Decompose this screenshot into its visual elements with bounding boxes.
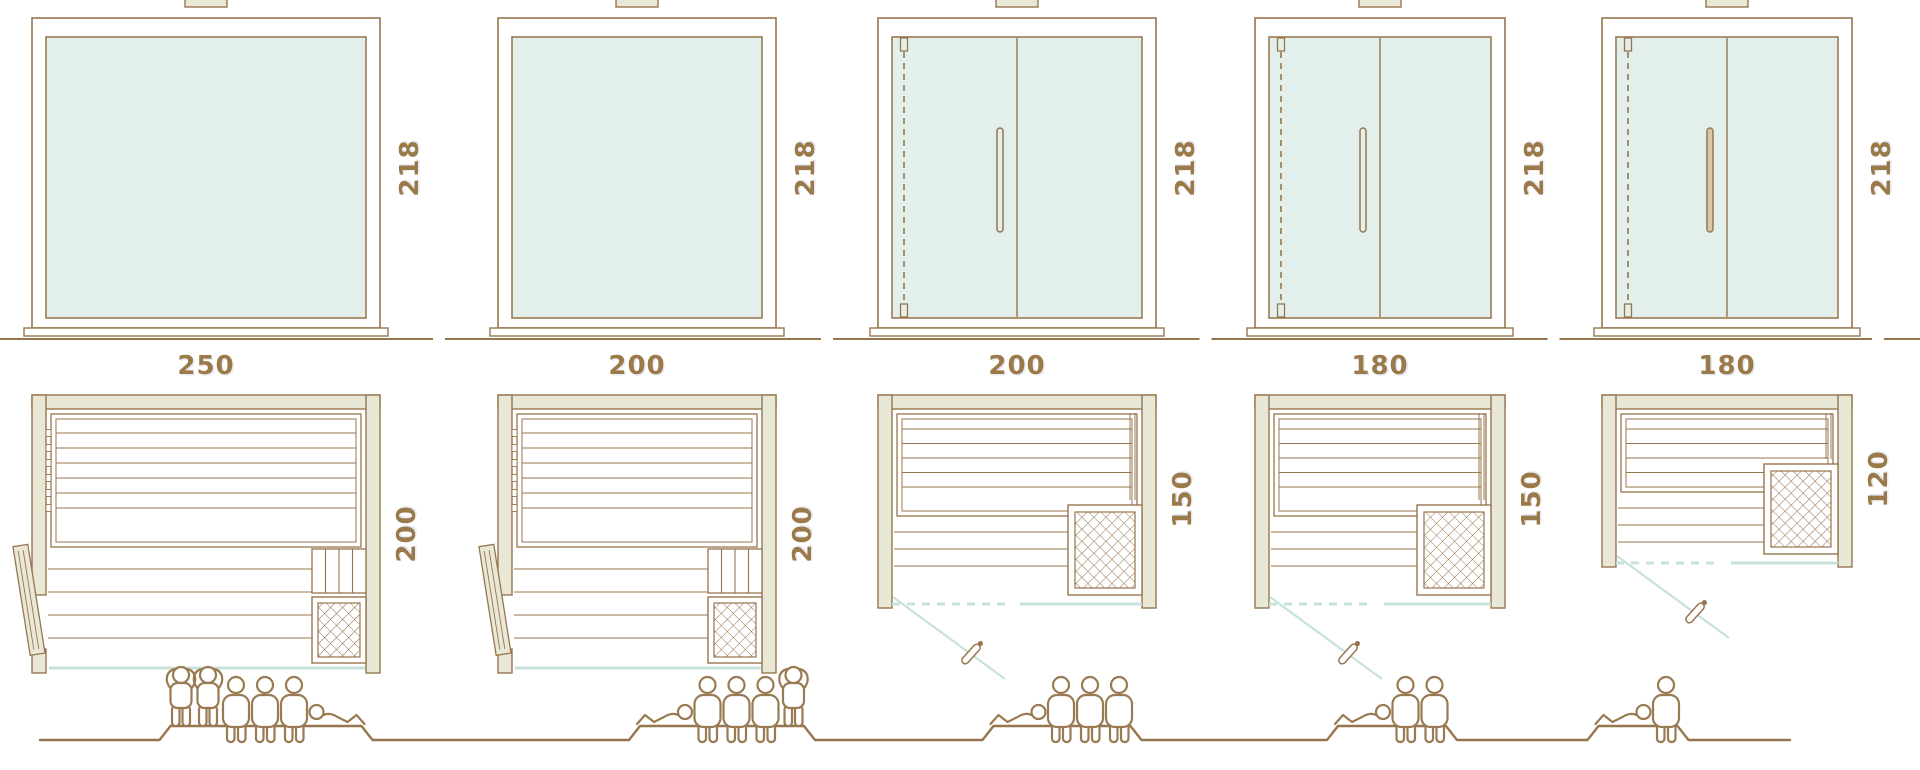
door-swing-icon [1270,597,1382,679]
elevation-base-line [0,336,1920,342]
depth-dim-label: 120 [1864,450,1894,507]
sauna-180x150-plan [1255,395,1505,679]
height-dim-label: 218 [1520,139,1550,196]
heater-icon [1068,505,1142,595]
sauna-dimensions-diagram: 218 250 200 218 200 200 218 200 150 218 … [0,0,1920,770]
door-handle-icon [1707,128,1713,232]
person-seated-icon [1422,677,1448,742]
door-handle-icon [997,128,1003,232]
person-seated-icon [1106,677,1132,742]
person-seated-icon [695,677,721,742]
width-dim-label: 250 [177,351,234,381]
person-lying-icon [1335,705,1390,724]
person-seated-icon [1077,677,1103,742]
person-standing-icon [194,667,222,726]
person-lying-icon [310,705,365,724]
sauna-200x200-elevation [490,0,784,336]
door-swing-icon [1617,556,1729,638]
person-seated-icon [1653,677,1679,742]
width-dim-label: 200 [608,351,665,381]
depth-dim-label: 200 [392,505,422,562]
person-seated-icon [223,677,249,742]
heater-icon [1764,464,1838,554]
heater-icon [312,597,366,663]
diagram-canvas [0,0,1920,770]
person-seated-icon [753,677,779,742]
width-dim-label: 200 [988,351,1045,381]
height-dim-label: 218 [791,139,821,196]
person-standing-icon [779,667,807,726]
sauna-200x150-elevation [870,0,1164,336]
person-lying-icon [991,705,1046,724]
person-seated-icon [252,677,278,742]
sauna-250x200-capacity-figures [167,667,365,742]
person-seated-icon [724,677,750,742]
door-swing-icon [893,597,1005,679]
person-seated-icon [1048,677,1074,742]
heater-icon [1417,505,1491,595]
height-dim-label: 218 [1171,139,1201,196]
sauna-250x200-plan [13,395,380,673]
sauna-200x200-plan [479,395,776,673]
sauna-180x150-elevation [1247,0,1513,336]
sauna-180x120-capacity-figures [1596,677,1680,742]
sauna-180x120-elevation [1594,0,1860,336]
sauna-200x150-plan [878,395,1156,679]
depth-dim-label: 150 [1517,470,1547,527]
person-seated-icon [1393,677,1419,742]
sauna-180x120-plan [1602,395,1852,638]
width-dim-label: 180 [1698,351,1755,381]
sauna-250x200-elevation [24,0,388,336]
person-seated-icon [281,677,307,742]
person-lying-icon [637,705,692,724]
sauna-200x150-capacity-figures [991,677,1133,742]
width-dim-label: 180 [1351,351,1408,381]
sauna-200x200-capacity-figures [637,667,808,742]
depth-dim-label: 150 [1168,470,1198,527]
heater-icon [708,597,762,663]
depth-dim-label: 200 [788,505,818,562]
person-standing-icon [167,667,195,726]
door-handle-icon [1360,128,1366,232]
sauna-180x150-capacity-figures [1335,677,1448,742]
height-dim-label: 218 [1867,139,1897,196]
height-dim-label: 218 [395,139,425,196]
person-lying-icon [1596,705,1651,724]
